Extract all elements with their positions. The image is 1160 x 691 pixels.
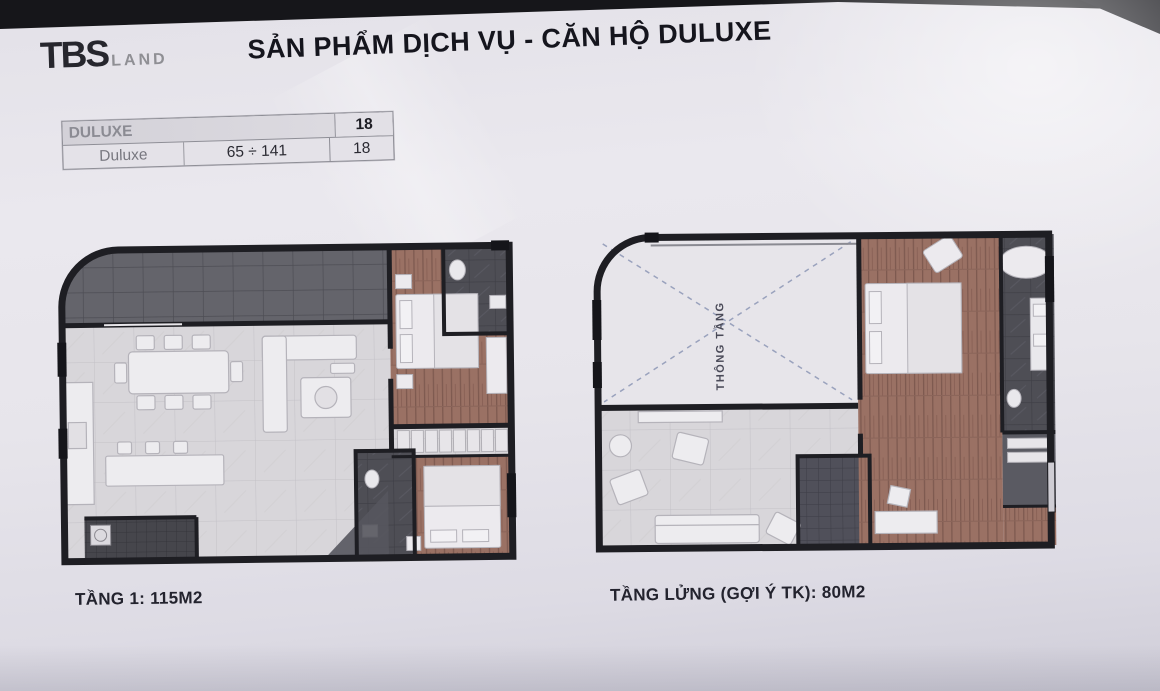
floor-plan-mezzanine: THÔNG TẦNG (589, 226, 1065, 555)
unit-summary-table: DULUXE 18 Duluxe 65 ÷ 141 18 (61, 111, 394, 170)
unit-count-cell: 18 (330, 136, 394, 161)
slide-photo: TBS LAND SẢN PHẨM DỊCH VỤ - CĂN HỘ DULUX… (0, 0, 1160, 691)
void-label: THÔNG TẦNG (713, 301, 727, 390)
mezzanine-bedroom (857, 234, 1004, 546)
floor1-caption: TẦNG 1: 115M2 (75, 588, 203, 610)
unit-count-header-cell: 18 (335, 112, 393, 137)
void-area: THÔNG TẦNG (597, 236, 858, 408)
utility-room (84, 517, 197, 561)
floor-plan-level1 (53, 237, 519, 568)
sofa-set (262, 335, 357, 432)
unit-type-cell: Duluxe (63, 142, 185, 169)
unit-area-range-cell: 65 ÷ 141 (184, 138, 331, 165)
sliding-door (104, 324, 182, 325)
photo-bottom-shadow (0, 645, 1160, 691)
logo-primary-text: TBS (39, 33, 108, 77)
balcony-terrace (61, 247, 390, 326)
tbs-land-logo: TBS LAND (39, 31, 168, 77)
logo-secondary-text: LAND (111, 51, 168, 71)
mezzanine-caption: TẦNG LỬNG (GỢI Ý TK): 80M2 (610, 582, 866, 606)
window-lower-right (1048, 462, 1055, 512)
